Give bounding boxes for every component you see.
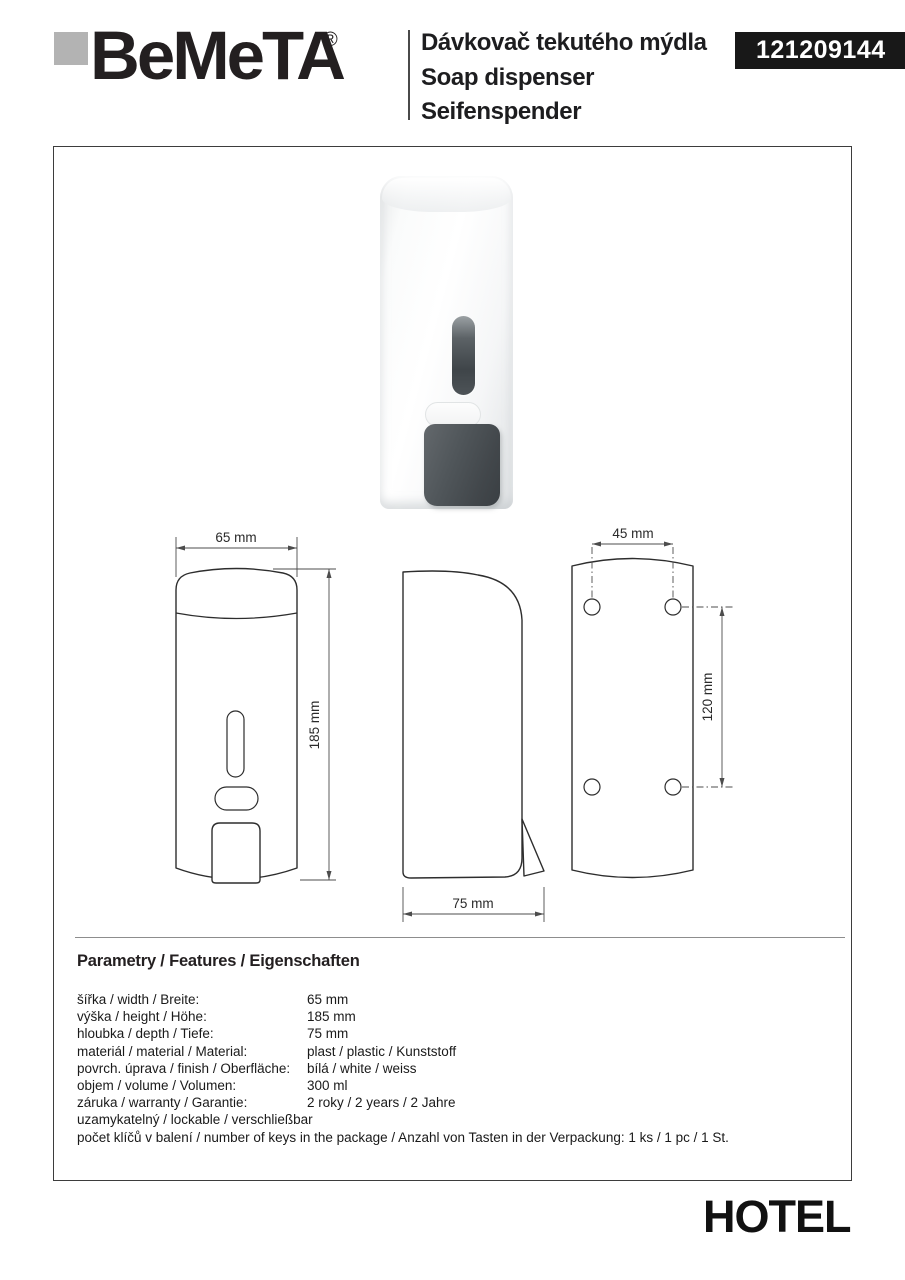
param-row-lockable: uzamykatelný / lockable / verschließbar: [77, 1111, 822, 1128]
front-height-label: 185 mm: [307, 701, 322, 750]
param-value: bílá / white / weiss: [307, 1060, 417, 1077]
param-row-volume: objem / volume / Volumen: 300 ml: [77, 1077, 822, 1094]
side-view-drawing: 75 mm: [403, 571, 544, 922]
param-value: 185 mm: [307, 1008, 356, 1025]
param-value: 2 roky / 2 years / 2 Jahre: [307, 1094, 456, 1111]
back-hole-spacing-horizontal-label: 45 mm: [612, 526, 653, 541]
side-depth-label: 75 mm: [452, 896, 493, 911]
param-row-warranty: záruka / warranty / Garantie: 2 roky / 2…: [77, 1094, 822, 1111]
param-row-depth: hloubka / depth / Tiefe: 75 mm: [77, 1025, 822, 1042]
param-row-material: materiál / material / Material: plast / …: [77, 1043, 822, 1060]
param-value: plast / plastic / Kunststoff: [307, 1043, 456, 1060]
param-value: 75 mm: [307, 1025, 348, 1042]
param-label: objem / volume / Volumen:: [77, 1077, 307, 1094]
product-title-cs: Dávkovač tekutého mýdla: [421, 26, 707, 61]
parameters-heading: Parametry / Features / Eigenschaften: [77, 952, 360, 971]
param-row-keys: počet klíčů v balení / number of keys in…: [77, 1129, 822, 1146]
parameters-divider: [75, 937, 845, 938]
product-title-de: Seifenspender: [421, 95, 707, 130]
brand-logo: BeMeTA: [90, 16, 343, 96]
registered-trademark-icon: ®: [323, 29, 338, 52]
header-divider: [408, 30, 410, 120]
front-width-label: 65 mm: [215, 530, 256, 545]
front-view-drawing: 65 mm 185 mm: [176, 530, 336, 883]
param-label: hloubka / depth / Tiefe:: [77, 1025, 307, 1042]
param-label: uzamykatelný / lockable / verschließbar: [77, 1111, 313, 1128]
product-photo-push-button: [424, 424, 500, 506]
product-titles: Dávkovač tekutého mýdla Soap dispenser S…: [421, 26, 707, 130]
back-hole-spacing-vertical-label: 120 mm: [700, 673, 715, 722]
product-code-badge: 121209144: [735, 32, 905, 69]
param-label: šířka / width / Breite:: [77, 991, 307, 1008]
param-label: materiál / material / Material:: [77, 1043, 307, 1060]
brand-logo-square: [54, 32, 88, 65]
param-row-height: výška / height / Höhe: 185 mm: [77, 1008, 822, 1025]
technical-drawings: 65 mm 185 mm 75 mm 45 mm: [120, 520, 820, 940]
back-view-drawing: 45 mm 120 mm: [572, 526, 735, 878]
param-row-finish: povrch. úprava / finish / Oberfläche: bí…: [77, 1060, 822, 1077]
param-label: výška / height / Höhe:: [77, 1008, 307, 1025]
param-label: počet klíčů v balení / number of keys in…: [77, 1129, 729, 1146]
param-row-width: šířka / width / Breite: 65 mm: [77, 991, 822, 1008]
product-photo-lid: [382, 178, 511, 212]
parameters-table: šířka / width / Breite: 65 mm výška / he…: [77, 991, 822, 1146]
param-value: 300 ml: [307, 1077, 348, 1094]
param-value: 65 mm: [307, 991, 348, 1008]
product-photo-level-window: [452, 316, 475, 395]
param-label: záruka / warranty / Garantie:: [77, 1094, 307, 1111]
series-name: HOTEL: [703, 1191, 851, 1243]
param-label: povrch. úprava / finish / Oberfläche:: [77, 1060, 307, 1077]
product-title-en: Soap dispenser: [421, 61, 707, 96]
